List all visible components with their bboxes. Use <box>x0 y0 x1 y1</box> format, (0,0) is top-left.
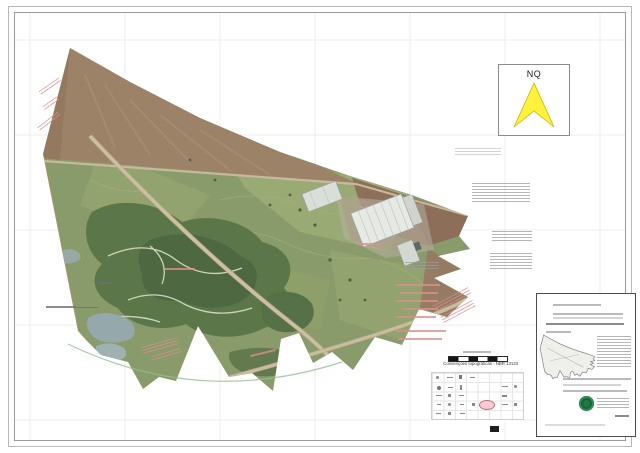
map-note <box>492 231 532 243</box>
title-block-text <box>553 304 601 306</box>
map-annotation <box>46 306 76 308</box>
map-annotation <box>396 300 438 302</box>
north-arrow-icon <box>499 65 569 135</box>
north-indicator: NQ <box>498 64 570 136</box>
legend-building-symbol <box>490 426 499 432</box>
title-block-paragraph <box>597 336 631 368</box>
title-block-text <box>563 378 631 380</box>
title-block <box>536 293 636 437</box>
map-annotation <box>396 284 440 286</box>
map-annotation <box>402 308 438 310</box>
map-note <box>490 253 532 269</box>
title-block-text <box>546 331 571 333</box>
map-annotation <box>396 316 436 318</box>
map-note <box>455 148 501 157</box>
title-block-text <box>563 390 627 392</box>
title-block-text <box>563 384 621 386</box>
map-annotation <box>356 243 382 245</box>
company-stamp <box>579 396 594 411</box>
title-block-text <box>545 424 605 426</box>
location-inset-map <box>539 334 599 382</box>
title-block-text <box>553 317 623 319</box>
stamp-caption <box>597 398 629 410</box>
drawing-sheet: NQ Convenções topográficas - NBR 13133 <box>0 0 640 453</box>
map-annotation <box>398 338 442 340</box>
legend-highlighted-item <box>479 400 495 410</box>
legend-title: Convenções topográficas - NBR 13133 <box>443 362 511 366</box>
signature-line <box>615 415 629 417</box>
map-annotation <box>165 268 195 270</box>
scale-label <box>463 351 491 353</box>
map-annotation <box>400 292 438 294</box>
leader-line <box>76 307 98 308</box>
legend-symbol-grid <box>431 372 524 420</box>
legend-box: Convenções topográficas - NBR 13133 <box>430 350 524 422</box>
title-block-text <box>553 313 623 315</box>
title-block-text <box>546 323 624 325</box>
map-annotation <box>396 330 446 332</box>
map-annotation <box>98 282 112 284</box>
map-note <box>405 262 439 271</box>
map-note <box>472 183 530 203</box>
